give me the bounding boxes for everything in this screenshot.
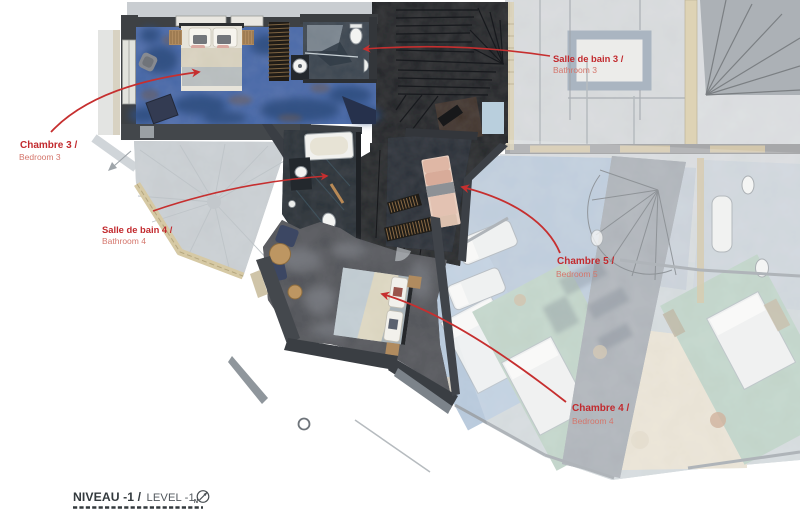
svg-text:LEVEL -1: LEVEL -1 bbox=[147, 492, 195, 504]
svg-text:Salle de bain 4 /: Salle de bain 4 / bbox=[102, 224, 173, 235]
svg-text:NIVEAU -1 /: NIVEAU -1 / bbox=[73, 490, 142, 504]
svg-text:Bedroom 5: Bedroom 5 bbox=[556, 269, 598, 279]
svg-text:Chambre 3 /: Chambre 3 / bbox=[20, 140, 77, 151]
svg-text:Bedroom 4: Bedroom 4 bbox=[572, 416, 614, 426]
svg-text:Salle de bain 3 /: Salle de bain 3 / bbox=[553, 53, 624, 64]
svg-text:Bedroom 3: Bedroom 3 bbox=[19, 152, 61, 162]
svg-text:Chambre 5 /: Chambre 5 / bbox=[557, 256, 614, 267]
svg-text:Bathroom 4: Bathroom 4 bbox=[102, 236, 146, 246]
svg-text:N: N bbox=[194, 499, 198, 505]
svg-text:Bathroom 3: Bathroom 3 bbox=[553, 65, 597, 75]
svg-text:Chambre 4 /: Chambre 4 / bbox=[572, 403, 629, 414]
